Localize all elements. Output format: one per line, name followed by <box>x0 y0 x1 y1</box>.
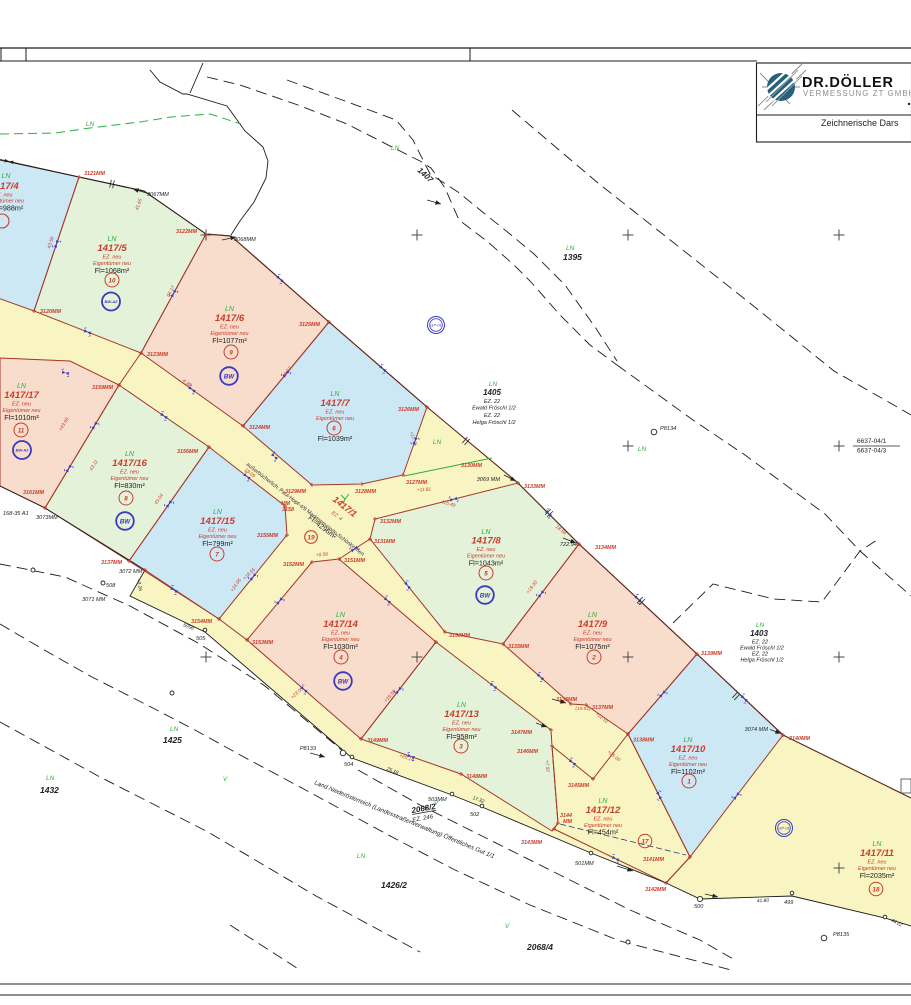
svg-text:3147MM: 3147MM <box>511 730 532 736</box>
svg-text:LN: LN <box>336 612 346 619</box>
svg-text:3140MM: 3140MM <box>789 736 810 742</box>
svg-text:3150MM: 3150MM <box>449 633 470 639</box>
svg-text:BW: BW <box>224 373 236 380</box>
svg-text:MM: MM <box>563 819 572 825</box>
svg-text:LN: LN <box>684 737 694 744</box>
svg-text:505: 505 <box>196 636 206 642</box>
svg-text:BW: BW <box>120 518 132 525</box>
svg-text:VERMESSUNG ZT GMBH: VERMESSUNG ZT GMBH <box>803 89 911 98</box>
svg-text:508: 508 <box>106 583 116 589</box>
svg-text:3067MM: 3067MM <box>147 192 169 198</box>
svg-text:EZ. neu: EZ. neu <box>208 528 227 534</box>
svg-text:LN: LN <box>599 798 609 805</box>
svg-text:3159MM: 3159MM <box>92 385 113 391</box>
svg-text:3072 MM: 3072 MM <box>119 569 143 575</box>
svg-text:6637-04/3: 6637-04/3 <box>857 448 887 455</box>
svg-text:1417/12: 1417/12 <box>586 805 621 816</box>
svg-text:504: 504 <box>344 762 353 768</box>
svg-text:3138MM: 3138MM <box>633 738 654 744</box>
svg-text:3131MM: 3131MM <box>374 539 395 545</box>
svg-text:3143MM: 3143MM <box>521 840 542 846</box>
svg-text:LN: LN <box>638 446 647 453</box>
svg-text:3152MM: 3152MM <box>283 562 304 568</box>
svg-text:GP-01: GP-01 <box>430 323 442 328</box>
svg-text:168-35 A1: 168-35 A1 <box>3 511 29 517</box>
svg-text:EZ. neu: EZ. neu <box>583 631 602 637</box>
svg-text:3121MM: 3121MM <box>84 171 105 177</box>
svg-text:5: 5 <box>484 570 488 577</box>
svg-text:3127MM: 3127MM <box>406 480 427 486</box>
svg-text:1417/6: 1417/6 <box>215 313 245 324</box>
svg-text:+11.81: +11.81 <box>417 487 432 494</box>
svg-text:LN: LN <box>125 451 135 458</box>
svg-text:EZ. neu: EZ. neu <box>477 547 496 553</box>
svg-text:1417/15: 1417/15 <box>200 516 235 527</box>
svg-text:EZ. neu: EZ. neu <box>12 402 31 408</box>
svg-text:3136MM: 3136MM <box>556 697 577 703</box>
svg-text:LN: LN <box>588 612 598 619</box>
svg-text:Ewald Fröschl 1/2: Ewald Fröschl 1/2 <box>472 406 516 412</box>
svg-text:3149MM: 3149MM <box>367 738 388 744</box>
svg-text:4: 4 <box>338 654 343 661</box>
svg-text:LN: LN <box>2 173 12 180</box>
svg-text:+7.92: +7.92 <box>543 760 550 773</box>
svg-text:EZ. neu: EZ. neu <box>331 631 350 637</box>
svg-text:+0.56: +0.56 <box>316 551 329 558</box>
svg-text:3071 MM: 3071 MM <box>82 597 106 603</box>
svg-text:3141MM: 3141MM <box>643 857 664 863</box>
svg-text:LN: LN <box>108 236 118 243</box>
svg-text:3135MM: 3135MM <box>508 644 529 650</box>
svg-text:3134MM: 3134MM <box>595 545 616 551</box>
svg-text:3129MM: 3129MM <box>285 489 306 495</box>
svg-text:LN: LN <box>46 775 55 782</box>
svg-text:Fl=830m²: Fl=830m² <box>114 481 145 490</box>
svg-text:1417/13: 1417/13 <box>444 709 479 720</box>
svg-text:P8135: P8135 <box>833 932 850 938</box>
svg-text:V: V <box>223 776 228 783</box>
svg-text:3137MM: 3137MM <box>592 705 613 711</box>
svg-text:EZ. neu: EZ. neu <box>679 756 698 762</box>
svg-text:3068MM: 3068MM <box>234 237 256 243</box>
svg-text:EZ. neu: EZ. neu <box>868 860 887 866</box>
svg-text:3073MM: 3073MM <box>36 515 58 521</box>
svg-text:EZ. neu: EZ. neu <box>120 470 139 476</box>
svg-text:Fl=1010m²: Fl=1010m² <box>4 413 39 422</box>
svg-text:3128MM: 3128MM <box>355 489 376 495</box>
svg-text:EZ. neu: EZ. neu <box>452 721 471 727</box>
svg-text:3120MM: 3120MM <box>40 309 61 315</box>
svg-text:500: 500 <box>694 904 704 910</box>
svg-text:1425: 1425 <box>163 735 182 745</box>
svg-text:502: 502 <box>470 812 480 818</box>
svg-text:EZ. neu: EZ. neu <box>594 817 613 823</box>
svg-text:EZ. neu: EZ. neu <box>220 325 239 331</box>
svg-text:1417/10: 1417/10 <box>671 744 706 755</box>
svg-text:GP-01: GP-01 <box>778 826 790 831</box>
svg-text:P8134: P8134 <box>660 426 676 432</box>
svg-text:BW: BW <box>338 678 350 685</box>
svg-text:LN: LN <box>566 245 575 252</box>
svg-text:Fl=1102m²: Fl=1102m² <box>671 767 706 776</box>
svg-text:3145MM: 3145MM <box>568 783 589 789</box>
svg-text:1: 1 <box>687 778 691 785</box>
svg-text:LN: LN <box>489 381 498 388</box>
svg-text:8: 8 <box>124 495 128 502</box>
svg-text:EZ. neu: EZ. neu <box>326 410 345 416</box>
svg-text:LN: LN <box>433 439 442 446</box>
svg-text:1417/7: 1417/7 <box>320 398 350 409</box>
svg-text:9: 9 <box>229 349 233 356</box>
svg-text:LN: LN <box>756 622 765 629</box>
svg-text:LN: LN <box>457 702 467 709</box>
svg-text:3074 MM: 3074 MM <box>745 727 769 733</box>
svg-text:LN: LN <box>391 145 400 152</box>
svg-text:1417/17: 1417/17 <box>4 390 39 401</box>
svg-text:3069 MM: 3069 MM <box>477 477 501 483</box>
svg-text:3142MM: 3142MM <box>645 887 666 893</box>
svg-text:18: 18 <box>872 886 880 893</box>
svg-text:1417/8: 1417/8 <box>471 536 501 547</box>
svg-text:Helga Fröschl 1/2: Helga Fröschl 1/2 <box>472 420 515 426</box>
svg-text:1405: 1405 <box>483 388 501 397</box>
svg-text:41.80: 41.80 <box>757 898 770 905</box>
svg-text:3137MM: 3137MM <box>101 560 122 566</box>
svg-text:19: 19 <box>307 535 315 542</box>
svg-text:3155MM: 3155MM <box>257 533 278 539</box>
svg-text:1417/9: 1417/9 <box>578 619 608 630</box>
svg-text:3: 3 <box>459 743 463 750</box>
svg-text:LN: LN <box>86 121 95 128</box>
svg-text:6: 6 <box>332 425 336 432</box>
svg-text:501MM: 501MM <box>575 861 594 867</box>
svg-text:LN: LN <box>331 391 341 398</box>
svg-text:Fl=958m²: Fl=958m² <box>446 732 477 741</box>
svg-text:1403: 1403 <box>750 629 768 638</box>
svg-text:(19.81): (19.81) <box>575 706 591 712</box>
svg-text:3132MM: 3132MM <box>380 519 401 525</box>
svg-text:EZ. neu: EZ. neu <box>103 255 122 261</box>
svg-text:3148MM: 3148MM <box>466 774 487 780</box>
svg-text:1417/4: 1417/4 <box>0 181 19 192</box>
svg-text:17: 17 <box>641 838 649 845</box>
svg-text:BW-A2: BW-A2 <box>16 447 30 452</box>
svg-text:EZ. 22: EZ. 22 <box>484 413 500 419</box>
svg-text:3123MM: 3123MM <box>147 352 168 358</box>
svg-text:BW: BW <box>480 592 492 599</box>
svg-text:3139MM: 3139MM <box>701 651 722 657</box>
svg-text:1417/16: 1417/16 <box>112 458 147 469</box>
svg-text:2068/4: 2068/4 <box>526 942 553 952</box>
svg-text:1432: 1432 <box>40 785 59 795</box>
svg-text:10: 10 <box>108 277 116 284</box>
svg-text:Fl=2035m²: Fl=2035m² <box>860 871 895 880</box>
svg-text:3151MM: 3151MM <box>344 558 365 564</box>
svg-text:3146MM: 3146MM <box>517 749 538 755</box>
svg-text:Zeichnerische Dars: Zeichnerische Dars <box>821 118 899 128</box>
svg-text:3125MM: 3125MM <box>299 322 320 328</box>
svg-text:P8133: P8133 <box>300 746 317 752</box>
svg-text:1417/11: 1417/11 <box>860 848 894 859</box>
svg-text:1417/5: 1417/5 <box>97 243 127 254</box>
svg-text:3126MM: 3126MM <box>398 407 419 413</box>
svg-text:3124MM: 3124MM <box>249 425 270 431</box>
svg-text:Helga Fröschl 1/2: Helga Fröschl 1/2 <box>740 658 783 664</box>
svg-text:LN: LN <box>213 509 223 516</box>
svg-text:LN: LN <box>873 841 883 848</box>
svg-text:LN: LN <box>17 383 27 390</box>
svg-text:2: 2 <box>591 654 596 661</box>
svg-text:11: 11 <box>18 427 25 434</box>
svg-text:Fl=1077m²: Fl=1077m² <box>212 336 247 345</box>
svg-text:EZ. 22: EZ. 22 <box>484 399 500 405</box>
svg-text:3122MM: 3122MM <box>176 229 197 235</box>
svg-text:1417/14: 1417/14 <box>323 619 358 630</box>
svg-text:LN: LN <box>170 726 179 733</box>
svg-text:3156MM: 3156MM <box>177 449 198 455</box>
svg-text:BW-A2: BW-A2 <box>105 299 119 304</box>
svg-text:1395: 1395 <box>563 252 582 262</box>
svg-text:3154MM: 3154MM <box>191 619 212 625</box>
svg-text:7: 7 <box>215 551 219 558</box>
svg-text:3158: 3158 <box>282 507 294 513</box>
svg-text:3130MM: 3130MM <box>461 463 482 469</box>
svg-text:1426/2: 1426/2 <box>381 880 407 890</box>
svg-text:3153MM: 3153MM <box>252 640 273 646</box>
svg-text:LN: LN <box>357 853 366 860</box>
svg-text:LN: LN <box>225 306 235 313</box>
svg-text:V: V <box>505 923 510 930</box>
svg-text:Fl=1068m²: Fl=1068m² <box>95 266 130 275</box>
svg-text:3161MM: 3161MM <box>23 490 44 496</box>
svg-text:Fl=454m²: Fl=454m² <box>588 828 619 837</box>
svg-text:499: 499 <box>784 900 793 906</box>
svg-text:3133MM: 3133MM <box>524 484 545 490</box>
svg-text:6637-04/1: 6637-04/1 <box>857 438 887 445</box>
svg-text:Fl=988m²: Fl=988m² <box>0 204 24 213</box>
svg-text:503MM: 503MM <box>428 797 447 803</box>
